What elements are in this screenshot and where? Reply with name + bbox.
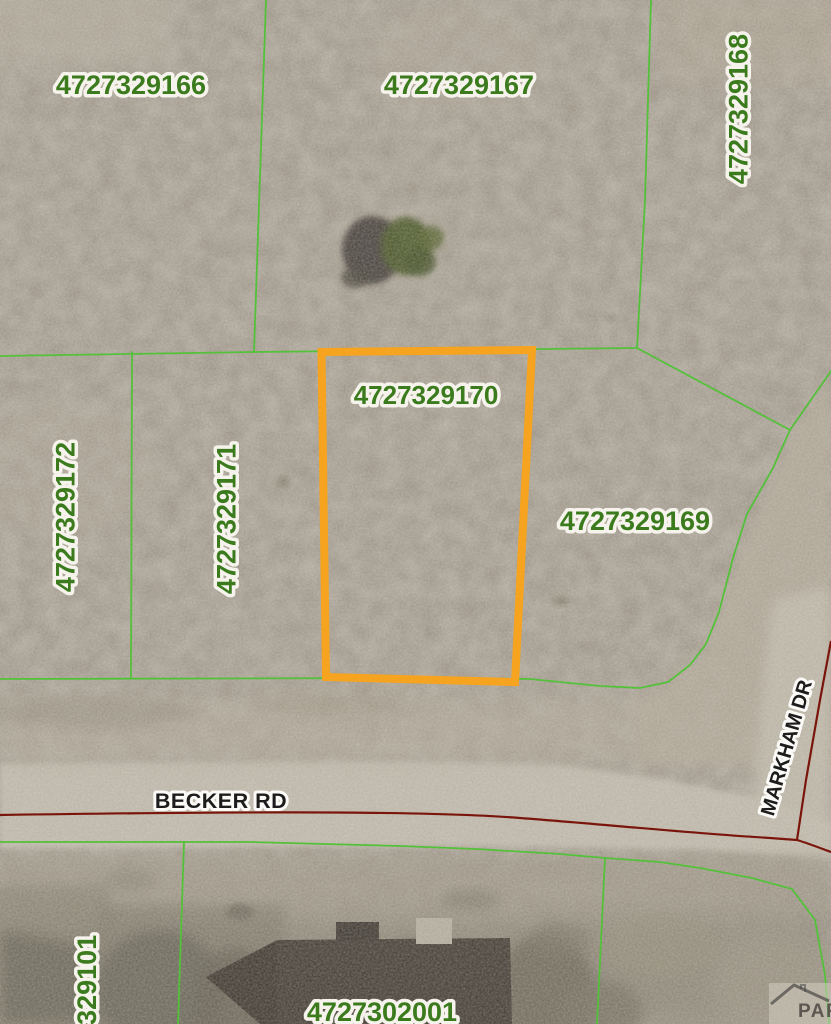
svg-text:4727329170: 4727329170: [354, 380, 499, 410]
svg-text:4727329166: 4727329166: [56, 70, 206, 100]
svg-text:4727329101: 4727329101: [72, 935, 102, 1024]
svg-text:4727329168: 4727329168: [724, 34, 754, 184]
svg-text:4727302001: 4727302001: [307, 997, 457, 1024]
svg-text:BECKER RD: BECKER RD: [155, 789, 287, 813]
svg-text:4727329171: 4727329171: [212, 444, 242, 594]
svg-text:PAR: PAR: [798, 1001, 831, 1022]
svg-text:4727329169: 4727329169: [560, 506, 710, 536]
svg-text:4727329172: 4727329172: [51, 442, 81, 592]
svg-text:4727329167: 4727329167: [384, 70, 534, 100]
